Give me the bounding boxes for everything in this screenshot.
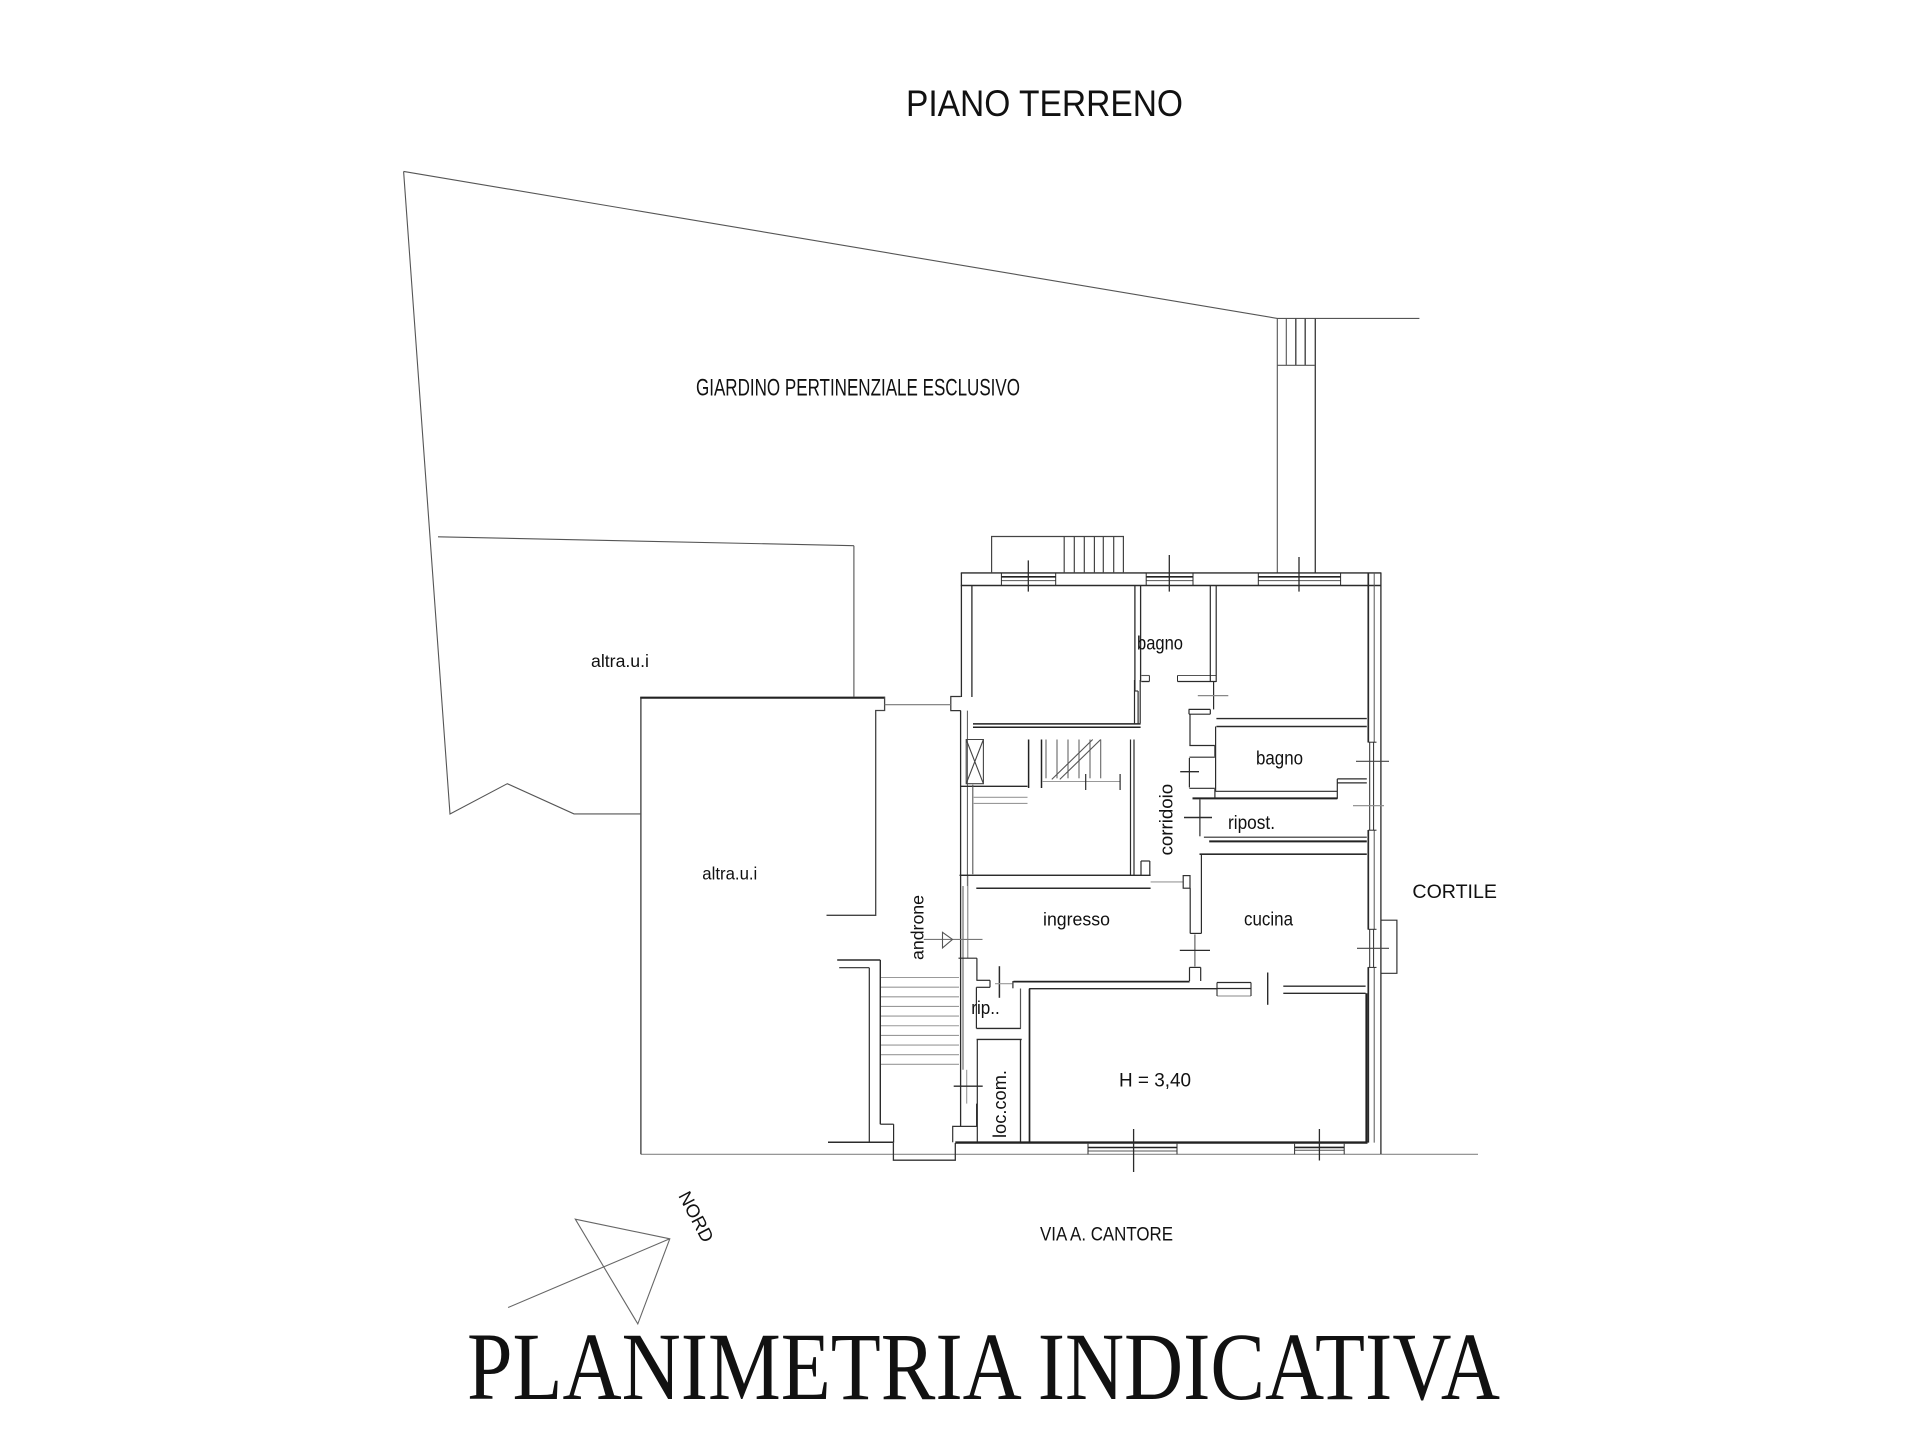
svg-text:rip..: rip.. bbox=[971, 998, 1000, 1018]
svg-text:PIANO TERRENO: PIANO TERRENO bbox=[906, 83, 1183, 124]
svg-text:bagno: bagno bbox=[1137, 634, 1183, 655]
svg-text:androne: androne bbox=[908, 895, 928, 960]
svg-text:corridoio: corridoio bbox=[1156, 784, 1177, 856]
svg-text:altra.u.i: altra.u.i bbox=[591, 651, 649, 671]
svg-text:H = 3,40: H = 3,40 bbox=[1119, 1071, 1191, 1092]
svg-text:altra.u.i: altra.u.i bbox=[702, 863, 757, 883]
svg-text:ripost.: ripost. bbox=[1228, 813, 1275, 834]
svg-text:loc.com.: loc.com. bbox=[990, 1070, 1010, 1138]
svg-text:cucina: cucina bbox=[1244, 910, 1293, 931]
svg-text:PLANIMETRIA INDICATIVA: PLANIMETRIA INDICATIVA bbox=[467, 1313, 1500, 1420]
svg-text:VIA A. CANTORE: VIA A. CANTORE bbox=[1040, 1225, 1173, 1246]
svg-text:CORTILE: CORTILE bbox=[1412, 882, 1497, 903]
svg-text:GIARDINO PERTINENZIALE ESCLUSI: GIARDINO PERTINENZIALE ESCLUSIVO bbox=[696, 375, 1020, 402]
svg-text:ingresso: ingresso bbox=[1043, 909, 1110, 930]
svg-text:bagno: bagno bbox=[1256, 749, 1303, 770]
